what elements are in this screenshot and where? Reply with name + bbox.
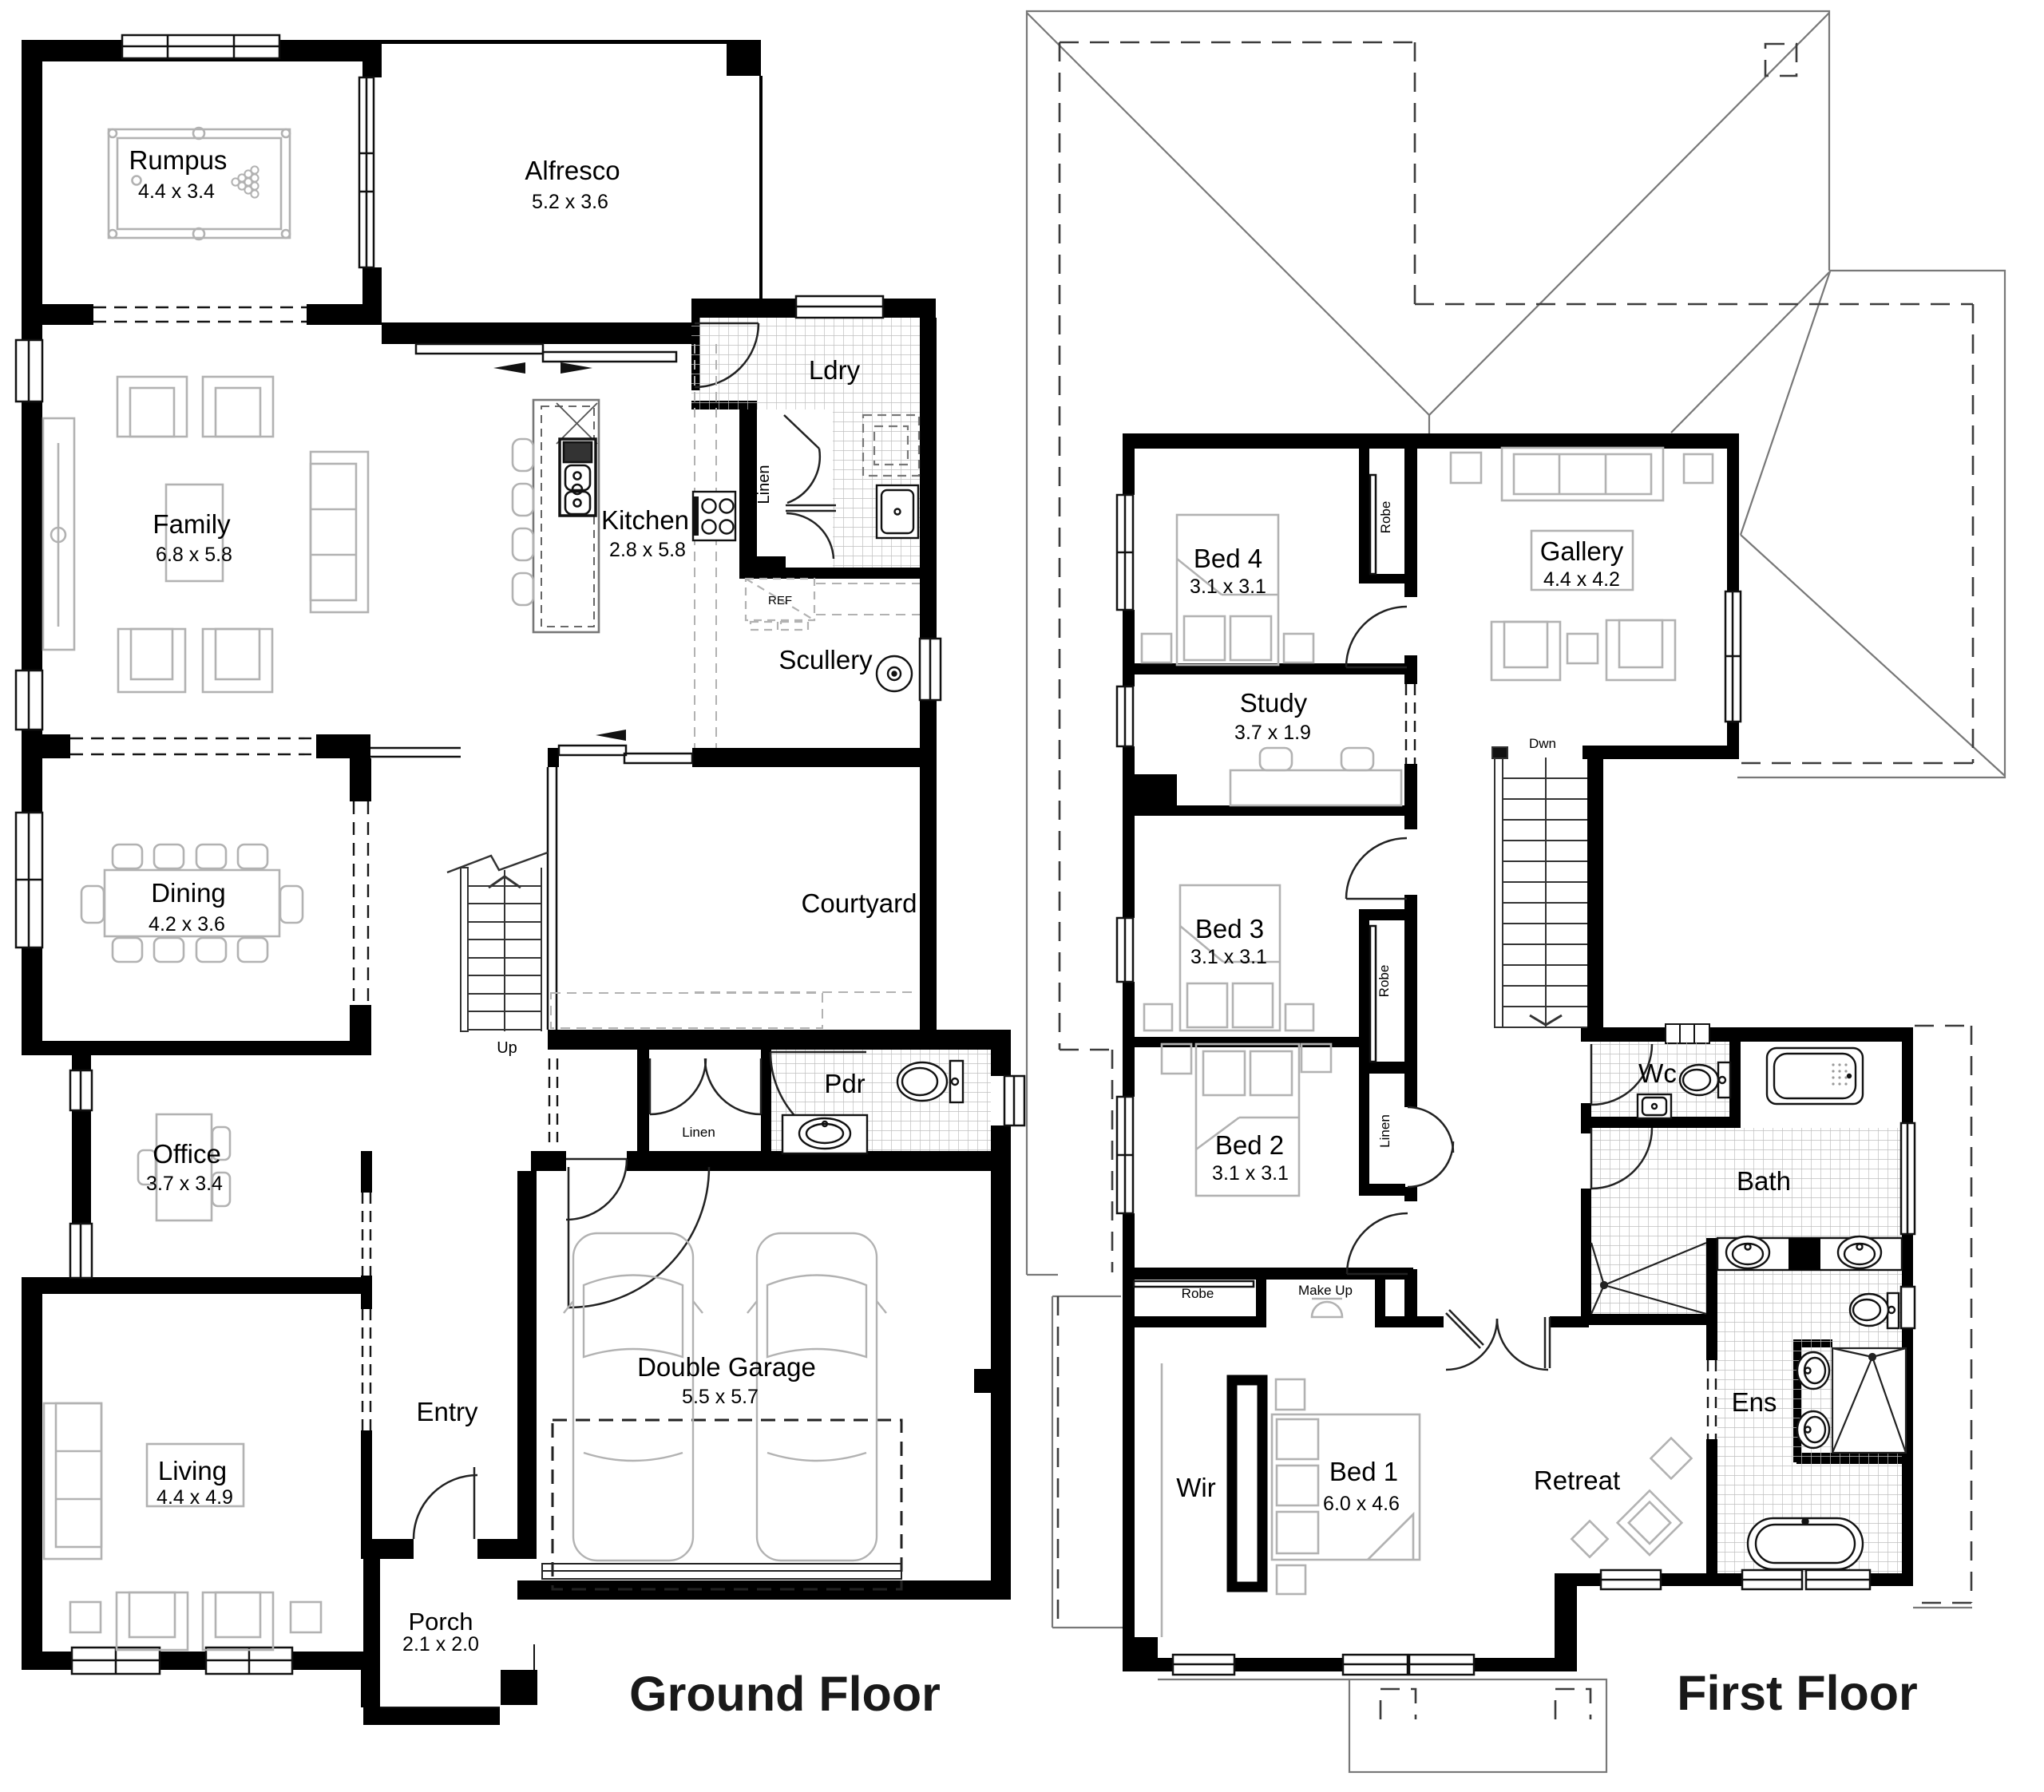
- svg-text:Wc: Wc: [1638, 1058, 1677, 1088]
- svg-text:REF: REF: [768, 594, 792, 607]
- svg-text:Gallery: Gallery: [1540, 536, 1624, 566]
- svg-text:Ground Floor: Ground Floor: [629, 1667, 941, 1721]
- svg-text:Bed 2: Bed 2: [1215, 1130, 1284, 1160]
- svg-text:6.8 x 5.8: 6.8 x 5.8: [156, 544, 232, 566]
- svg-text:3.7 x 3.4: 3.7 x 3.4: [146, 1173, 223, 1195]
- svg-text:Entry: Entry: [416, 1397, 478, 1426]
- svg-text:Robe: Robe: [1182, 1286, 1214, 1301]
- svg-text:6.0 x 4.6: 6.0 x 4.6: [1323, 1493, 1400, 1515]
- svg-text:4.4 x 4.9: 4.4 x 4.9: [156, 1486, 233, 1509]
- svg-text:Linen: Linen: [755, 465, 773, 504]
- svg-text:Pdr: Pdr: [824, 1069, 865, 1098]
- svg-text:5.2 x 3.6: 5.2 x 3.6: [532, 191, 608, 213]
- svg-text:Kitchen: Kitchen: [601, 505, 689, 535]
- svg-text:Wir: Wir: [1176, 1473, 1215, 1502]
- svg-text:Bed 1: Bed 1: [1329, 1457, 1398, 1486]
- svg-text:2.1 x 2.0: 2.1 x 2.0: [402, 1633, 479, 1656]
- svg-text:3.1 x 3.1: 3.1 x 3.1: [1190, 946, 1267, 968]
- svg-text:Make Up: Make Up: [1298, 1283, 1353, 1298]
- svg-text:Dwn: Dwn: [1529, 736, 1556, 751]
- svg-text:2.8 x 5.8: 2.8 x 5.8: [609, 539, 686, 561]
- svg-text:Robe: Robe: [1377, 965, 1392, 998]
- svg-text:Double Garage: Double Garage: [637, 1352, 816, 1382]
- svg-text:4.4 x 3.4: 4.4 x 3.4: [138, 180, 215, 203]
- svg-text:4.2 x 3.6: 4.2 x 3.6: [149, 913, 225, 936]
- svg-text:Alfresco: Alfresco: [525, 156, 620, 185]
- svg-text:Family: Family: [153, 509, 231, 539]
- svg-text:Linen: Linen: [1377, 1114, 1392, 1148]
- svg-text:Dining: Dining: [151, 878, 226, 908]
- svg-text:Living: Living: [158, 1456, 227, 1485]
- svg-text:Bath: Bath: [1737, 1166, 1791, 1196]
- svg-text:Robe: Robe: [1378, 501, 1393, 534]
- svg-text:Ldry: Ldry: [809, 355, 861, 385]
- svg-text:Courtyard: Courtyard: [802, 888, 917, 918]
- svg-text:Bed 4: Bed 4: [1194, 544, 1262, 573]
- svg-text:Linen: Linen: [682, 1125, 715, 1140]
- svg-text:Scullery: Scullery: [778, 645, 873, 674]
- svg-text:Bed 3: Bed 3: [1195, 914, 1264, 943]
- svg-text:3.7 x 1.9: 3.7 x 1.9: [1234, 722, 1311, 744]
- svg-text:Porch: Porch: [409, 1608, 473, 1636]
- svg-text:Ens: Ens: [1732, 1387, 1777, 1417]
- svg-text:First Floor: First Floor: [1677, 1666, 1918, 1720]
- svg-text:Up: Up: [497, 1039, 517, 1057]
- svg-text:Retreat: Retreat: [1534, 1466, 1620, 1495]
- svg-text:Office: Office: [153, 1139, 221, 1169]
- svg-text:3.1 x 3.1: 3.1 x 3.1: [1212, 1162, 1289, 1185]
- svg-text:3.1 x 3.1: 3.1 x 3.1: [1190, 576, 1266, 598]
- svg-text:4.4 x 4.2: 4.4 x 4.2: [1543, 568, 1620, 591]
- svg-text:Study: Study: [1240, 688, 1308, 718]
- svg-text:Rumpus: Rumpus: [129, 145, 228, 175]
- svg-text:5.5 x 5.7: 5.5 x 5.7: [682, 1386, 759, 1408]
